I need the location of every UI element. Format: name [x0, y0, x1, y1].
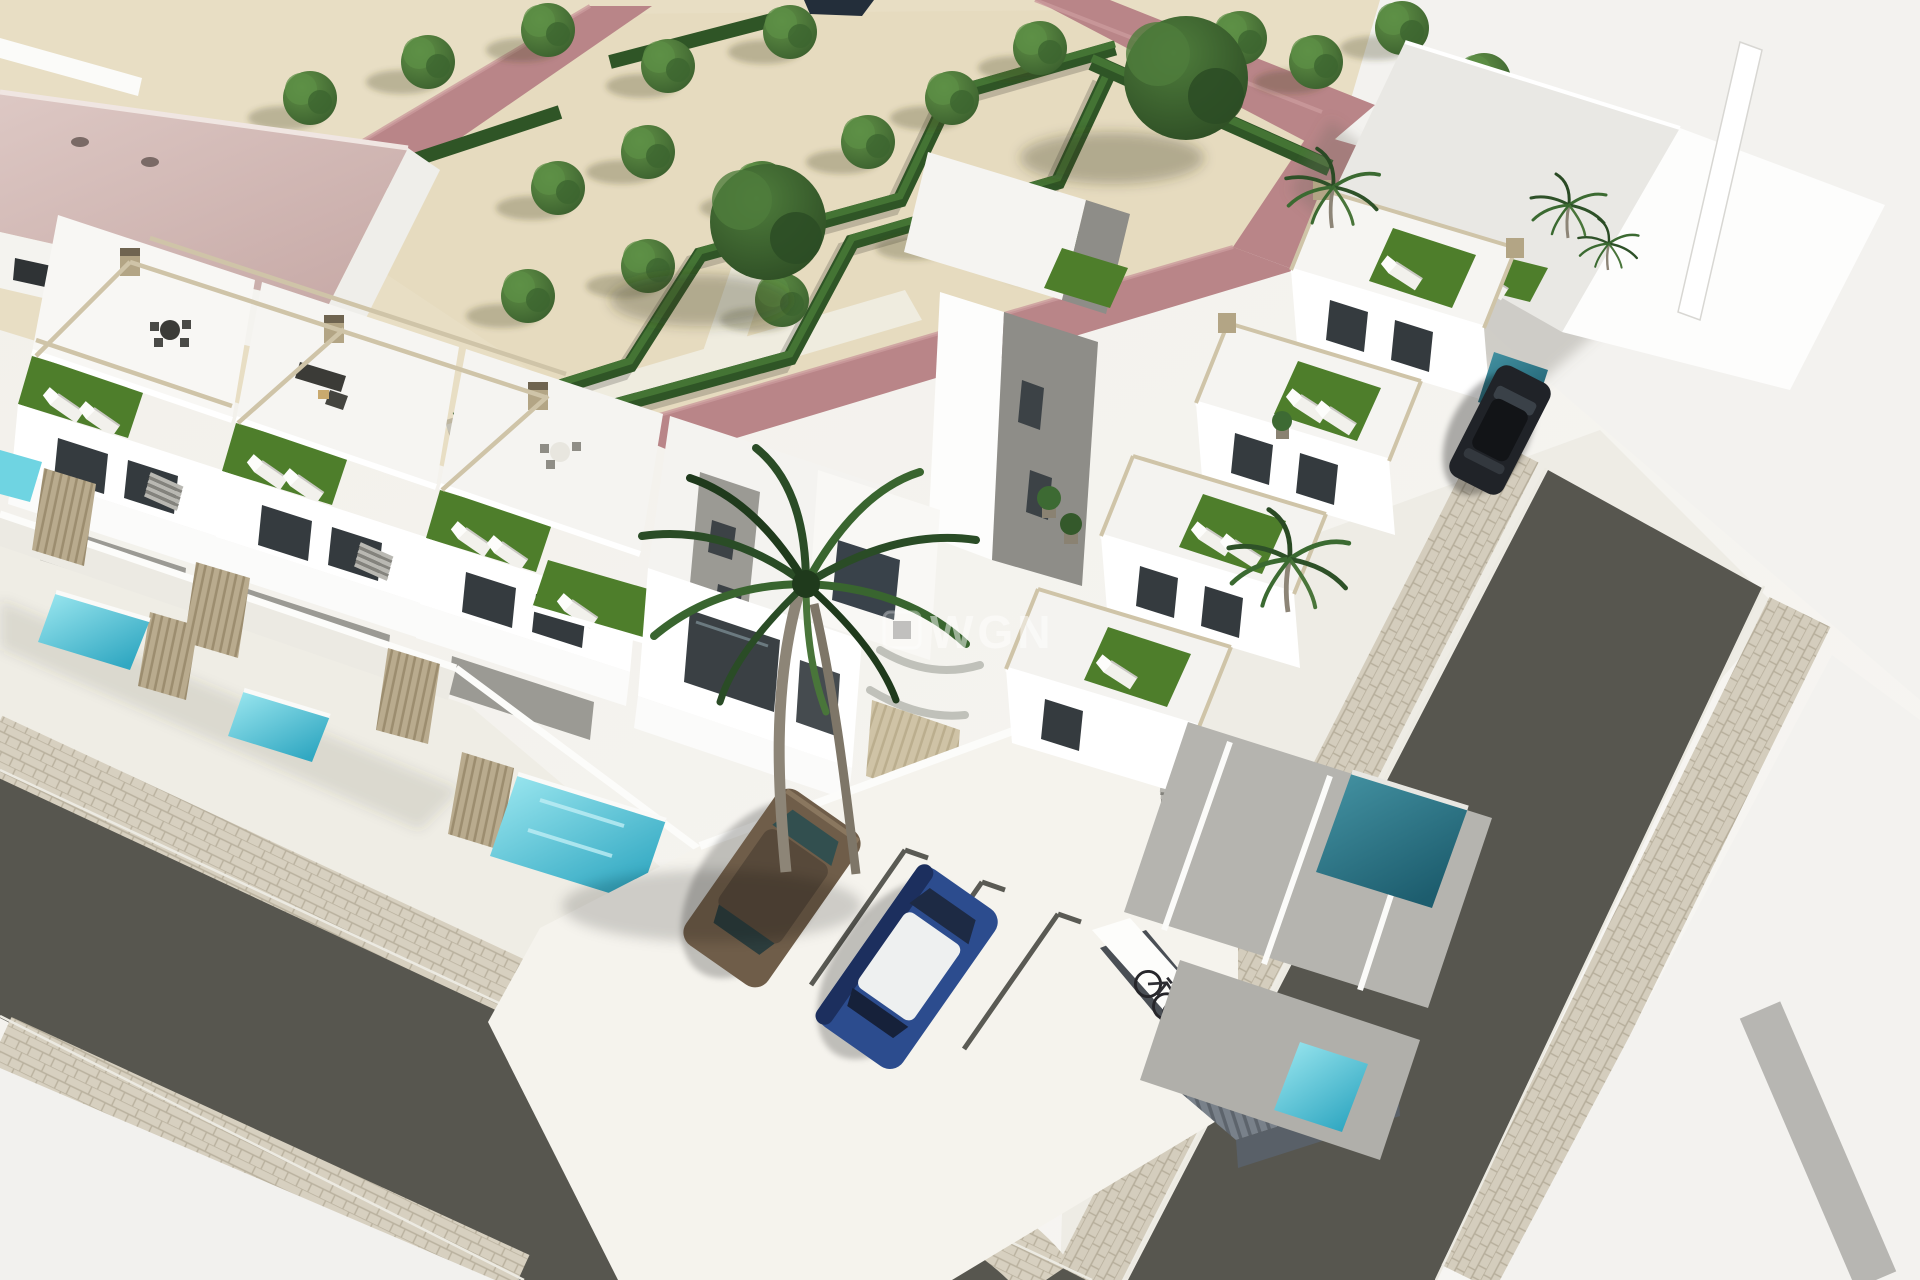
pergola-post-cap [528, 382, 548, 390]
watermark-logo-glyph [893, 621, 911, 639]
dark-strip-top [804, 0, 874, 16]
pergola-post [1506, 238, 1524, 258]
palm-shadow [562, 870, 862, 942]
render-viewport: WGN [0, 0, 1920, 1280]
tower-face-lit [928, 292, 1004, 560]
tower-face-dark [992, 312, 1098, 586]
roof-drain [141, 157, 159, 167]
watermark-text: WGN [930, 606, 1054, 658]
pergola-post-cap [120, 248, 140, 256]
window [1018, 380, 1044, 430]
roof-drain [71, 137, 89, 147]
slat-fence [184, 562, 250, 658]
pergola-post-cap [324, 315, 344, 323]
aerial-render: WGN [0, 0, 1920, 1280]
pergola-post [1218, 313, 1236, 333]
